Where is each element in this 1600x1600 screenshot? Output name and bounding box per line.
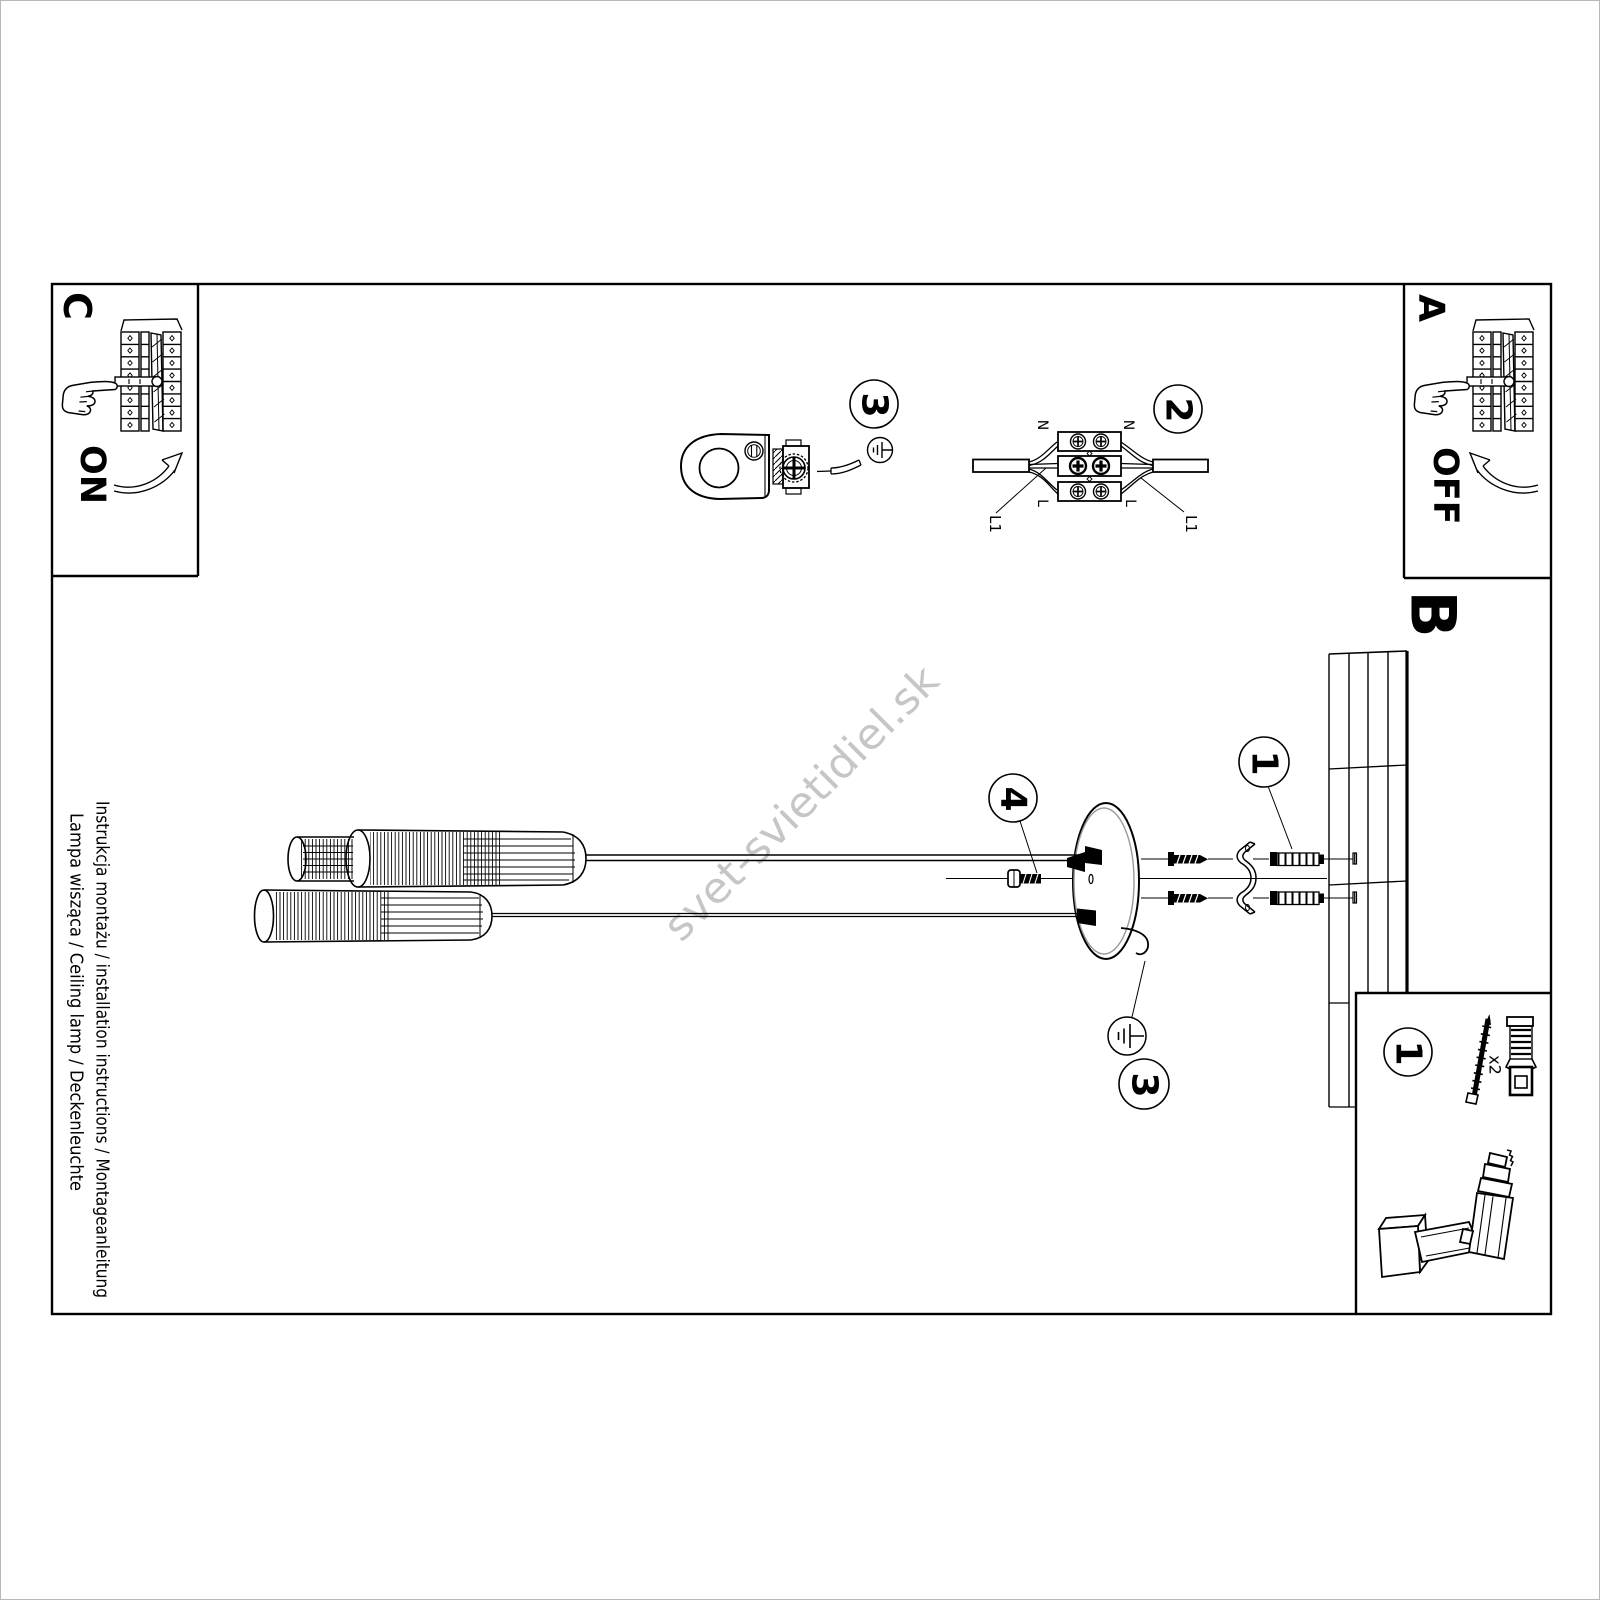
lamp-shade-back [288,837,354,881]
callout-1b: 1 [1388,1040,1429,1065]
diagram-svg: svet-svietidiel.sk Instrukcja montażu / … [1,1,1600,1600]
callout-4-leader [1020,821,1037,873]
hook-assembly: 3 [681,380,898,499]
ceiling-canopy [1073,803,1139,959]
step-a-label: A [1411,294,1452,322]
title-line-2: Lampa wisząca / Ceiling lamp / Deckenleu… [66,813,87,1191]
terminal-row-mid [1058,456,1121,476]
arrow-off-icon [1470,453,1538,493]
screw-qty-label: x2 [1486,1055,1505,1075]
suspension-rods [492,855,1087,917]
label-l-right: L [1122,499,1138,507]
lamp-shade-bottom [255,890,493,942]
callout-2: 2 [1158,397,1199,422]
step-c-section: C ON [55,292,182,504]
earth-symbol-icon [874,442,893,458]
parts-box: 1 x2 [1379,1014,1536,1277]
terminal-row-n [1058,432,1121,451]
label-n-right: N [1120,420,1136,430]
callout-1-leader [1268,786,1292,849]
callout-3-top: 3 [854,392,895,417]
cable-right [1153,460,1208,473]
fuse-panel-a [1414,319,1534,431]
arrow-on-icon [114,453,182,493]
eye-bracket [681,434,769,499]
callout-1: 1 [1244,750,1285,775]
step-b-section: B 1 [1141,590,1470,1107]
step-b-label: B [1397,590,1470,637]
step-c-label: C [55,292,99,320]
lamp-shade-top [346,830,586,887]
label-l-left: L [1034,499,1050,507]
earth-wire [817,460,861,474]
switch-off-label: OFF [1425,447,1465,525]
callout-4: 4 [993,786,1034,811]
label-l1-right: L1 [1182,515,1200,533]
label-n-left: N [1034,420,1050,430]
sidebar-titles: Instrukcja montażu / installation instru… [66,801,113,1298]
small-screw-head-icon [745,442,763,460]
earth-terminal-block [773,440,809,494]
cable-left [973,460,1029,473]
step-a-section: A OFF [1411,294,1539,525]
earth-symbol-icon [1119,1024,1145,1048]
l1-leaders [996,468,1184,513]
fuse-panel-c [62,319,182,431]
instruction-sheet: svet-svietidiel.sk Instrukcja montażu / … [0,0,1600,1600]
switch-on-label: ON [72,445,112,504]
callout-3-bottom: 3 [1124,1072,1165,1097]
set-screw-icon [1008,870,1041,887]
wires [1029,442,1153,494]
wall-section [1329,651,1407,1107]
terminal-screws [1070,434,1109,499]
drill-icon [1379,1150,1513,1277]
label-l1-left: L1 [986,515,1004,533]
terminal-row-l [1058,482,1121,501]
pilot-holes [1353,853,1357,903]
watermark-text: svet-svietidiel.sk [654,655,949,950]
callout-3-leader [1132,961,1145,1017]
eye-hole [700,449,739,488]
box-c-border [52,284,198,576]
wall-plug-vertical-icon [1506,1017,1536,1095]
terminal-block-assembly: 2 [973,385,1208,533]
title-line-1: Instrukcja montażu / installation instru… [92,801,113,1298]
